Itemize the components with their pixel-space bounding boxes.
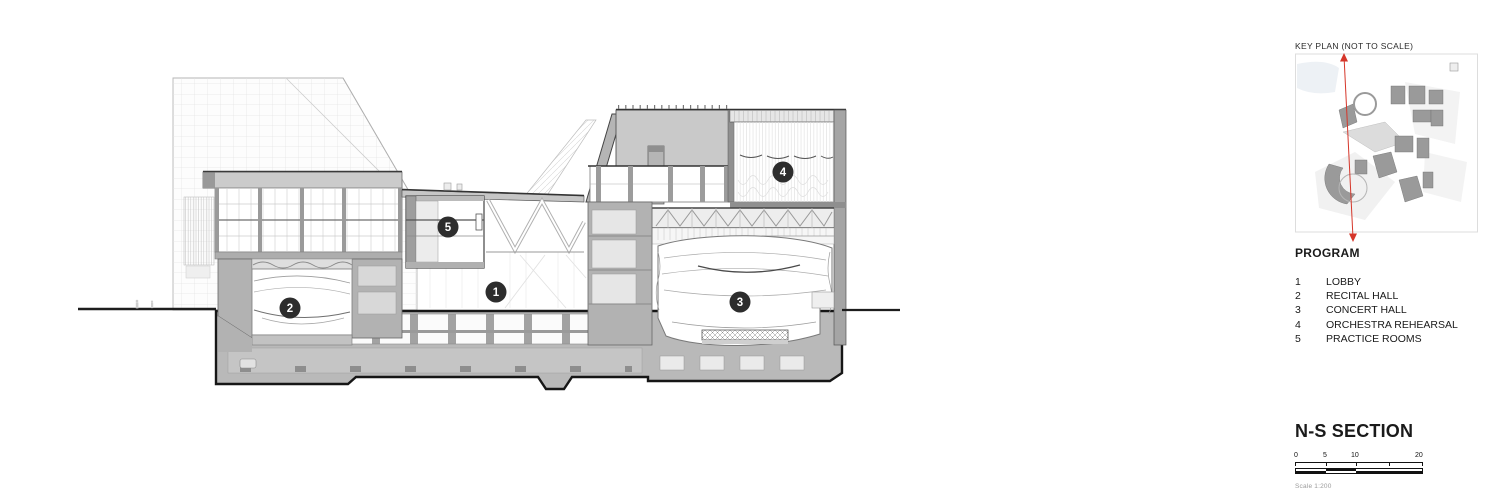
- svg-text:5: 5: [445, 222, 452, 234]
- key-plan-title: KEY PLAN (NOT TO SCALE): [1295, 41, 1413, 51]
- scale-caption: Scale 1:200: [1295, 483, 1332, 490]
- section-title: N-S SECTION: [1295, 421, 1413, 442]
- north-symbol: [1450, 63, 1458, 71]
- program-list: 1 LOBBY 2 RECITAL HALL 3 CONCERT HALL 4 …: [1295, 275, 1495, 346]
- parked-car: [240, 359, 256, 368]
- info-panel: KEY PLAN (NOT TO SCALE): [1295, 0, 1512, 503]
- scale-label-20: 20: [1415, 452, 1423, 459]
- program-item-recital-hall: 2 RECITAL HALL: [1295, 289, 1495, 303]
- concert-roof-mass: [616, 110, 730, 166]
- drawing-sheet: 1 2 3 4 5 KEY PLAN (NOT TO SCALE): [0, 0, 1512, 503]
- lobby-truss: [486, 200, 584, 252]
- svg-text:1: 1: [493, 287, 500, 299]
- program-item-practice-rooms: 5 PRACTICE ROOMS: [1295, 332, 1495, 346]
- svg-text:2: 2: [287, 303, 293, 315]
- concert-hall-interior: [656, 236, 832, 346]
- marker-3-concert-hall: 3: [730, 292, 751, 313]
- marker-1-lobby: 1: [486, 282, 507, 303]
- scale-figures: [136, 300, 154, 309]
- lobby-skylight-slope: [524, 120, 596, 197]
- recital-hall-interior: [252, 269, 352, 335]
- svg-text:3: 3: [737, 297, 743, 309]
- recital-block: [203, 172, 402, 353]
- marker-2-recital-hall: 2: [280, 298, 301, 319]
- louver-strip: [184, 197, 214, 265]
- svg-text:4: 4: [780, 167, 787, 179]
- stage-platform: [702, 330, 788, 340]
- program-title: PROGRAM: [1295, 246, 1360, 260]
- program-item-lobby: 1 LOBBY: [1295, 275, 1495, 289]
- lobby-zone: [402, 120, 596, 308]
- scale-label-5: 5: [1323, 452, 1327, 459]
- scale-label-10: 10: [1351, 452, 1359, 459]
- key-plan-map: [1295, 52, 1478, 244]
- program-item-concert-hall: 3 CONCERT HALL: [1295, 303, 1495, 317]
- scale-bar: 0 5 10 20: [1295, 452, 1425, 476]
- hall-roof-truss: [652, 208, 834, 228]
- marker-4-orchestra-rehearsal: 4: [773, 162, 794, 183]
- marker-5-practice-rooms: 5: [438, 217, 459, 238]
- scale-label-0: 0: [1294, 452, 1298, 459]
- ns-section-drawing: 1 2 3 4 5: [0, 0, 950, 503]
- program-item-orchestra-rehearsal: 4 ORCHESTRA REHEARSAL: [1295, 318, 1495, 332]
- concert-block: [586, 107, 846, 346]
